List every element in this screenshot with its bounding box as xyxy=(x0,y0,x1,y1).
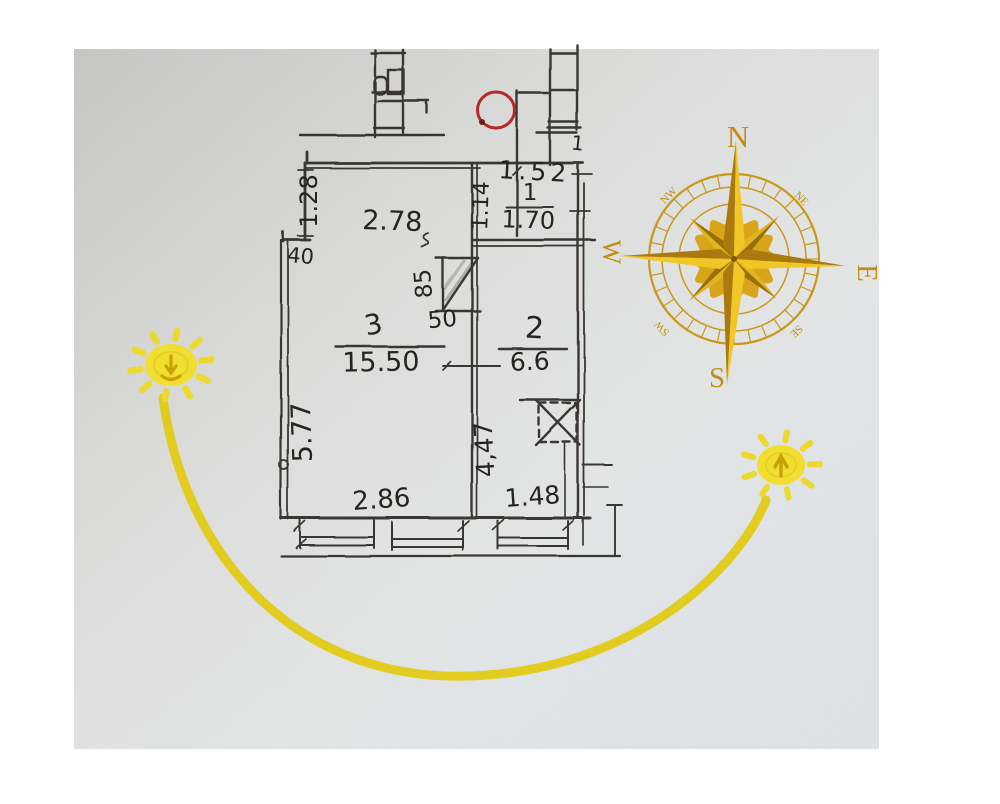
room3-area: 15.50 xyxy=(342,346,420,378)
room2-area: 6.6 xyxy=(509,346,550,376)
dim-1-14: 1.14 xyxy=(468,181,495,231)
dim-5-77: 5.77 xyxy=(286,402,319,463)
dim-50: 50 xyxy=(427,306,458,334)
floorplan-canvas: 1.28 2.78 1.14 1.52 1 1.70 40 85 50 3 15… xyxy=(0,0,1000,804)
dim-4-47: 4,47 xyxy=(469,421,501,478)
dim-2-86: 2.86 xyxy=(352,483,412,517)
compass-center-dot xyxy=(731,256,737,262)
compass-label-e: E xyxy=(851,264,883,282)
room1-area: 1.70 xyxy=(501,205,555,235)
compass-label-n: N xyxy=(727,119,749,154)
dim-1-28: 1.28 xyxy=(295,174,323,227)
room1-number: 1 xyxy=(523,180,538,206)
compass-label-w: W xyxy=(597,240,626,265)
dim-2-78: 2.78 xyxy=(362,205,423,238)
room2-number: 2 xyxy=(524,311,545,347)
scanned-floorplan-photo: { "document": { "kind": "hand-drawn apar… xyxy=(0,0,1000,804)
compass-label-s: S xyxy=(709,362,725,394)
dim-40: 40 xyxy=(286,243,315,269)
dim-85: 85 xyxy=(410,268,438,299)
dim-1-48: 1.48 xyxy=(504,480,562,513)
mark-1: 1 xyxy=(570,130,585,155)
